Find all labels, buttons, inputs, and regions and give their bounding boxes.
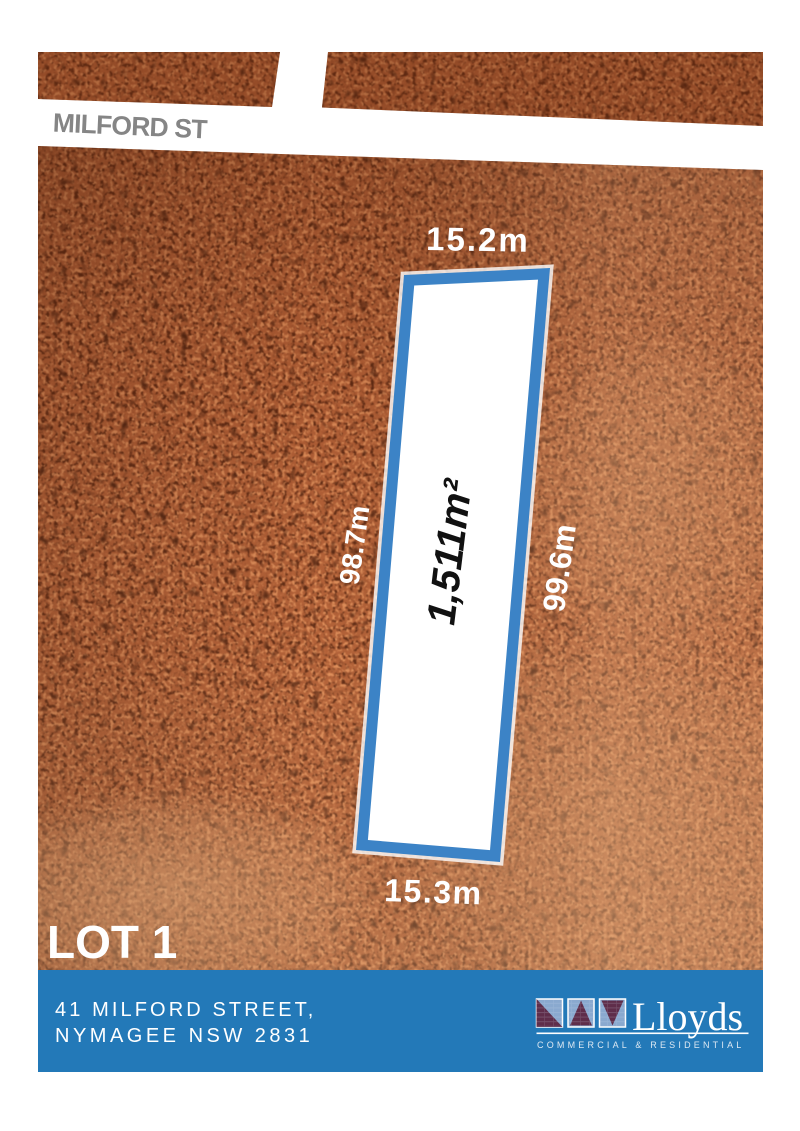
svg-text:LOT 1: LOT 1 (47, 916, 177, 968)
svg-text:COMMERCIAL & RESIDENTIAL: COMMERCIAL & RESIDENTIAL (537, 1040, 745, 1050)
svg-text:15.3m: 15.3m (384, 872, 483, 911)
svg-text:Lloyds: Lloyds (632, 994, 743, 1039)
svg-text:41 MILFORD STREET,: 41 MILFORD STREET, (55, 999, 316, 1021)
svg-text:15.2m: 15.2m (426, 220, 530, 259)
svg-text:NYMAGEE NSW 2831: NYMAGEE NSW 2831 (55, 1025, 313, 1047)
